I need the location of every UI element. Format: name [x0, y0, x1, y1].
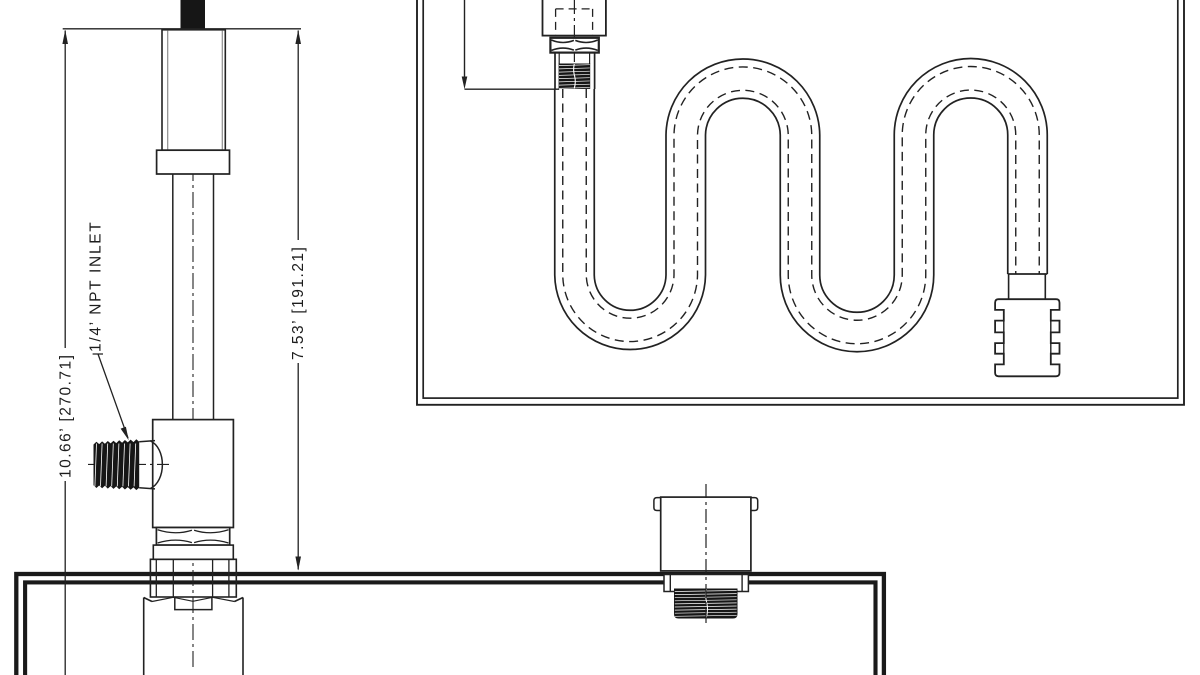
svg-text:7.53’ [191.21]: 7.53’ [191.21] — [290, 246, 307, 360]
svg-text:1/4’ NPT INLET: 1/4’ NPT INLET — [88, 221, 105, 352]
svg-text:10.66’ [270.71]: 10.66’ [270.71] — [58, 354, 75, 478]
